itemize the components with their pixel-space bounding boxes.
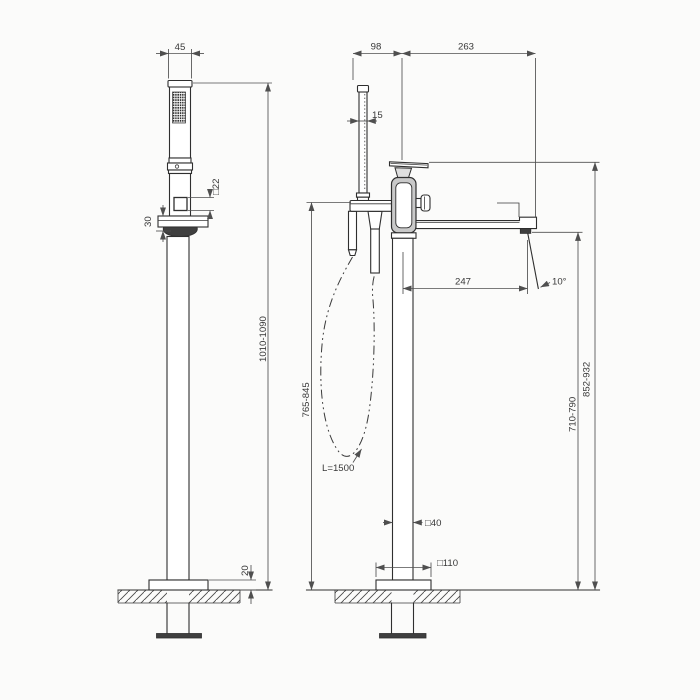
dim-label-spout-reach: 247: [455, 277, 471, 288]
shower-head-cap-front: [358, 86, 369, 93]
handle-stem: [395, 168, 412, 178]
shower-square-button: [174, 198, 187, 211]
dim-label-overall-height: 1010-1090: [258, 316, 269, 362]
dim-label-shower-offset: 98: [371, 42, 382, 53]
spout-outlet: [520, 229, 531, 234]
shower-spray-face-grid: [173, 92, 186, 123]
dim-head-width: 45: [156, 42, 204, 79]
holder-cup: [163, 227, 197, 237]
dim-label-hose-length: L=1500: [322, 463, 354, 474]
dim-flow-angle: 10°: [541, 277, 567, 288]
dim-label-spout-span: 263: [458, 42, 474, 53]
shower-neck-band: [168, 163, 193, 170]
anchor-flange: [157, 634, 202, 639]
floor-section-front: [307, 590, 600, 638]
holder-socket-shaft: [371, 229, 380, 273]
shower-grip-lower: [349, 211, 357, 250]
diverter-knob-cap: [421, 195, 430, 211]
floor-hatch-right: [189, 590, 240, 603]
water-flow-angle-line: [528, 234, 539, 289]
dim-label-base-plate-size: □110: [437, 558, 458, 569]
base-plate-side: [149, 580, 208, 590]
shower-hose-loop: [321, 257, 375, 456]
dim-holder-height-range: 765-845: [301, 203, 351, 591]
dim-label-head-width: 45: [175, 42, 186, 53]
dim-label-holder-height-range: 765-845: [301, 382, 312, 417]
shower-head-cap: [168, 81, 192, 88]
body-housing-inner: [396, 183, 412, 228]
body-base-band: [392, 233, 417, 239]
holder-socket-cone: [368, 211, 382, 229]
spout-rear-profile-line: [497, 203, 519, 217]
holder-bracket-front: [350, 201, 393, 212]
dim-label-handle-height-range: 852-932: [582, 362, 593, 397]
base-plate-front: [376, 580, 431, 590]
holder-bracket-arm: [350, 201, 393, 212]
shower-holder-side: [158, 216, 208, 237]
hose-connector-tip: [349, 250, 357, 256]
floor-hatch-left: [335, 590, 392, 603]
riser-column-side: [167, 237, 189, 581]
dim-label-column-section: □40: [425, 518, 441, 529]
dim-top-widths: 98 263: [353, 42, 536, 218]
dim-base-plate-size: □110: [376, 558, 458, 577]
technical-drawing-page: 45 □22 30 1010-1090 20: [0, 0, 700, 700]
spout: [416, 203, 537, 233]
hand-shower-side: [168, 81, 193, 217]
side-view: 45 □22 30 1010-1090 20: [118, 42, 272, 638]
diverter-knob-neck: [416, 199, 421, 208]
dim-spout-reach: 247: [403, 240, 528, 294]
dim-label-base-plate-thickness: 20: [240, 565, 251, 576]
technical-drawing-canvas: 45 □22 30 1010-1090 20: [0, 0, 700, 700]
dim-label-square-detail: □22: [211, 179, 222, 195]
shower-head-profile: [359, 92, 367, 193]
holder-bracket-bar: [158, 216, 208, 227]
dim-hose-length: L=1500: [322, 449, 362, 474]
anchor-flange: [380, 634, 427, 639]
floor-hatch-right: [414, 590, 461, 603]
dim-label-shower-thickness: 15: [372, 110, 383, 121]
floor-section-side: [118, 590, 272, 638]
floor-hatch-left: [118, 590, 167, 603]
dim-label-flow-angle: 10°: [552, 277, 567, 288]
dim-square-detail: □22: [188, 179, 222, 219]
front-view: 98 263 15 247 10° 765-845 710-79: [301, 42, 600, 639]
shower-ring-band: [169, 158, 191, 163]
shower-ring-front: [357, 193, 370, 197]
dim-label-spout-height-range: 710-790: [568, 397, 579, 432]
dim-overall-height: 1010-1090: [193, 83, 272, 590]
dim-label-holder-height: 30: [143, 216, 154, 227]
